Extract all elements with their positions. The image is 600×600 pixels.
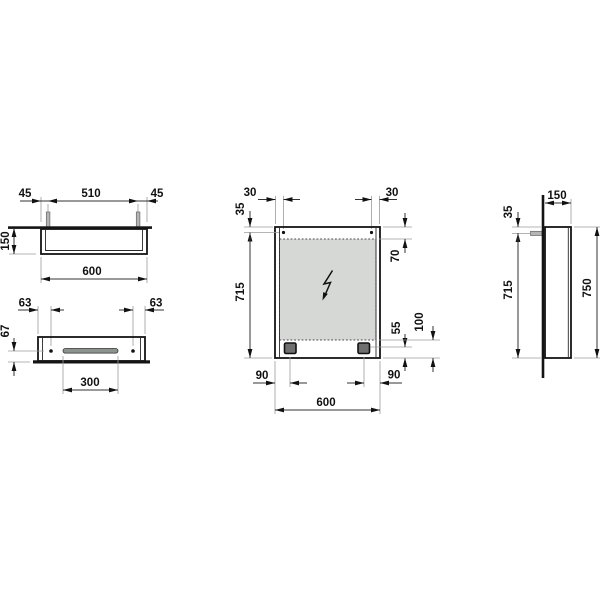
drawing-canvas: 45 510 45 150 600 [0, 0, 600, 600]
hanger-hole-left [282, 231, 285, 234]
dim-bottom-hole-offsets: 63 63 [18, 298, 164, 313]
dim-top-depth-label: 150 [0, 231, 12, 250]
dim-bottom-hole-left: 63 [19, 298, 32, 310]
dim-bottom-hole-depth-label: 67 [0, 325, 12, 338]
dim-bottom-slot-label: 300 [80, 377, 99, 389]
hanger-bracket-side [531, 231, 543, 235]
front-view: 30 30 35 715 [235, 187, 440, 414]
dim-front-hanger-offset-right: 30 [355, 187, 398, 202]
screw-hole-left [49, 349, 53, 353]
dim-front-light-right-label: 90 [388, 370, 401, 382]
dim-top-hanger-span: 510 [81, 188, 100, 200]
light-switch-right [358, 343, 370, 354]
dim-side-hanger-top-label: 35 [503, 205, 515, 218]
dim-front-mirror-from-bottom: 100 [379, 312, 440, 372]
light-switch-left [285, 343, 297, 354]
dim-side-depth: 150 [545, 190, 571, 205]
dim-front-mounting-height: 715 [235, 233, 272, 359]
dim-side-mounting-height: 715 [503, 233, 520, 358]
wall-line-side [542, 195, 545, 378]
wall-hanger-pin-right [136, 212, 140, 227]
dim-bottom-hole-right: 63 [150, 298, 163, 310]
dim-side-depth-label: 150 [547, 190, 566, 202]
dim-front-hanger-top-label: 35 [235, 202, 247, 215]
dim-front-hanger-right-label: 30 [386, 187, 399, 199]
dim-front-light-left-label: 90 [256, 370, 269, 382]
cabinet-body-top-inner [46, 230, 143, 251]
hanger-hole-right [370, 231, 373, 234]
dim-front-light-bottom-label: 55 [391, 321, 403, 334]
dim-side-height-label: 750 [582, 278, 594, 297]
dimension-drawing: 45 510 45 150 600 [0, 0, 600, 600]
dim-front-mirror-from-top: 70 [379, 213, 412, 262]
top-view: 45 510 45 150 600 [0, 188, 164, 283]
dim-front-mirror-top-label: 70 [390, 250, 402, 263]
dim-top-width-label: 600 [82, 266, 101, 278]
dim-front-height-label: 715 [235, 282, 247, 302]
screw-hole-right [131, 349, 135, 353]
bottom-view: 63 63 67 300 [0, 298, 164, 395]
light-diffuser-slot [63, 349, 118, 354]
dim-top-offset-left: 45 [19, 188, 32, 200]
dim-top-depth: 150 [0, 228, 36, 254]
wall-hanger-pin-left [46, 212, 50, 227]
dim-front-mirror-bottom-label: 100 [414, 312, 426, 331]
dim-front-width: 600 [275, 397, 380, 412]
dim-top-offsets: 45 510 45 [19, 188, 164, 203]
dim-front-width-label: 600 [316, 397, 335, 409]
dim-front-hanger-from-top: 35 [235, 202, 279, 241]
dim-top-width: 600 [41, 257, 147, 283]
wall-line-bottom [33, 360, 150, 363]
side-view: 150 35 715 750 [503, 190, 600, 378]
dim-top-offset-right: 45 [151, 188, 164, 200]
dim-front-hanger-offset-left: 30 [244, 187, 300, 202]
dim-front-hanger-left-label: 30 [244, 187, 257, 199]
dim-side-mounting-label: 715 [503, 280, 515, 300]
dim-side-height: 750 [582, 227, 599, 358]
cabinet-body-side [545, 227, 571, 358]
